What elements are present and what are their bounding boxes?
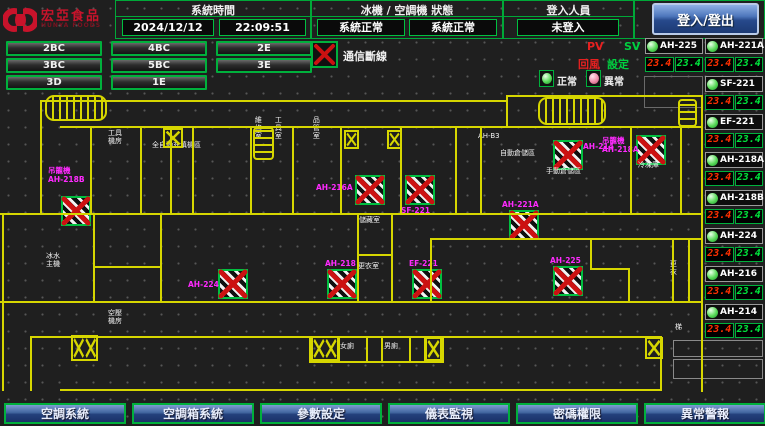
- floorplan-wall: [590, 240, 592, 270]
- unit-pv-value: 23.4: [705, 171, 734, 186]
- unit-sv-value: 23.4: [735, 171, 764, 186]
- room-label: 工具室: [274, 116, 282, 140]
- stairs-icon: [678, 99, 697, 127]
- system-time-label: 系統時間: [115, 2, 311, 18]
- offline-device-icon[interactable]: [553, 140, 583, 170]
- unit-status-lamp-icon: [707, 117, 718, 128]
- unit-sv-value: 23.4: [735, 285, 764, 300]
- room-label: 冰水主機: [46, 252, 60, 269]
- room-label: 女廁: [340, 342, 354, 350]
- unit-sv-value: 23.4: [675, 57, 704, 72]
- shaft-x-icon: [425, 337, 442, 361]
- unit-status-lamp-icon: [647, 41, 658, 52]
- unit-pv-value: 23.4: [705, 209, 734, 224]
- floorplan-wall: [480, 126, 482, 215]
- floor-button[interactable]: 5BC: [111, 58, 207, 73]
- unit-sv-value: 23.4: [735, 95, 764, 110]
- unit-name: AH-221A: [720, 41, 764, 51]
- nav-button[interactable]: 空調系統: [4, 403, 126, 424]
- comm-loss-icon: [311, 41, 338, 68]
- unit-panel[interactable]: AH-221A 23.4 23.4: [705, 38, 763, 72]
- unit-name: AH-218B: [720, 193, 764, 203]
- unit-sv-value: 23.4: [735, 133, 764, 148]
- chiller-status-value: 系統正常: [317, 19, 405, 36]
- device-label: AH-218: [325, 259, 356, 268]
- unit-status-lamp-icon: [707, 231, 718, 242]
- shaft-x-icon: [645, 337, 663, 359]
- sv-name-label: 設定: [607, 56, 629, 72]
- floor-button[interactable]: 1E: [111, 75, 207, 90]
- floor-button[interactable]: 2E: [216, 41, 312, 56]
- floorplan-wall: [60, 126, 703, 128]
- unit-panel[interactable]: AH-214 23.4 23.4: [705, 304, 763, 338]
- offline-device-icon[interactable]: [61, 196, 91, 226]
- unit-values-row: 23.4 23.4: [705, 323, 763, 338]
- floor-button[interactable]: 2BC: [6, 41, 102, 56]
- floorplan-wall: [628, 268, 630, 303]
- unit-values-row: 23.4 23.4: [705, 247, 763, 262]
- floorplan-wall: [60, 389, 662, 391]
- logo-mark-icon: [3, 5, 37, 35]
- unit-status-lamp-icon: [707, 193, 718, 204]
- unit-values-row: 23.4 23.4: [705, 57, 763, 72]
- machine-status-label: 冰機 / 空調機 狀態: [311, 2, 503, 18]
- offline-device-icon[interactable]: [412, 269, 442, 299]
- unit-status-lamp-icon: [707, 79, 718, 90]
- normal-lamp-icon: [542, 73, 552, 84]
- unit-status-lamp-icon: [707, 41, 718, 52]
- unit-name: AH-224: [720, 231, 757, 241]
- room-label: 手動倉儲區: [546, 167, 581, 175]
- logo-subtitle: HUNYA FOODS: [41, 23, 101, 29]
- unit-name-row: AH-214: [705, 304, 763, 320]
- floorplan-wall: [93, 266, 162, 268]
- unit-sv-value: 23.4: [735, 57, 764, 72]
- empty-panel: [673, 359, 763, 379]
- floorplan-wall: [680, 126, 682, 215]
- floorplan-wall: [160, 215, 162, 303]
- comm-loss-label: 通信斷線: [343, 48, 387, 64]
- offline-device-icon[interactable]: [405, 175, 435, 205]
- stairs-icon: [253, 127, 274, 160]
- room-label: 空壓機房: [108, 309, 122, 326]
- unit-status-lamp-icon: [707, 155, 718, 166]
- floorplan-wall: [506, 95, 703, 97]
- unit-sv-value: 23.4: [735, 209, 764, 224]
- offline-device-icon[interactable]: [327, 269, 357, 299]
- unit-sv-value: 23.4: [735, 323, 764, 338]
- floor-button[interactable]: 3D: [6, 75, 102, 90]
- unit-name: AH-214: [720, 307, 757, 317]
- device-label: AH-225: [550, 256, 581, 265]
- floorplan-wall: [309, 361, 444, 363]
- stairs-icon: [45, 95, 107, 121]
- floorplan-wall: [40, 100, 508, 102]
- abnormal-label: 異常: [604, 73, 624, 88]
- floor-button[interactable]: 3E: [216, 58, 312, 73]
- normal-label: 正常: [557, 73, 577, 88]
- floorplan-wall: [340, 126, 342, 215]
- abnormal-lamp-box: [586, 70, 601, 87]
- unit-panel[interactable]: SF-221 23.4 23.4: [705, 76, 763, 110]
- floorplan-wall: [140, 126, 142, 215]
- unit-sv-value: 23.4: [735, 247, 764, 262]
- floorplan-wall: [30, 336, 662, 338]
- unit-panel[interactable]: AH-225 23.4 23.4: [645, 38, 703, 72]
- floorplan-wall: [366, 336, 368, 363]
- unit-name-row: AH-221A: [705, 38, 763, 54]
- unit-values-row: 23.4 23.4: [645, 57, 703, 72]
- shaft-x-icon: [387, 130, 402, 149]
- empty-panel: [673, 340, 763, 357]
- floorplan-wall: [90, 126, 92, 215]
- nav-button[interactable]: 儀表監視: [388, 403, 510, 424]
- device-label: EF-221: [409, 259, 438, 268]
- unit-panel[interactable]: AH-216 23.4 23.4: [705, 266, 763, 300]
- unit-panel[interactable]: AH-224 23.4 23.4: [705, 228, 763, 262]
- offline-device-icon[interactable]: [553, 266, 583, 296]
- floorplan-wall: [93, 215, 95, 303]
- abnormal-lamp-icon: [589, 73, 599, 84]
- floorplan-wall: [30, 336, 32, 391]
- unit-name-row: SF-221: [705, 76, 763, 92]
- floor-button[interactable]: 3BC: [6, 58, 102, 73]
- unit-values-row: 23.4 23.4: [705, 171, 763, 186]
- floorplan-wall: [40, 100, 42, 215]
- unit-name-row: AH-216: [705, 266, 763, 282]
- floorplan-wall: [192, 126, 194, 215]
- unit-panel[interactable]: AH-218A 23.4 23.4: [705, 152, 763, 186]
- floorplan-wall: [672, 240, 674, 303]
- floorplan-wall: [0, 301, 703, 303]
- unit-name-row: AH-225: [645, 38, 703, 54]
- unit-name-row: EF-221: [705, 114, 763, 130]
- floorplan-wall: [381, 336, 383, 363]
- floorplan-wall: [430, 238, 703, 240]
- nav-button[interactable]: 密碼權限: [516, 403, 638, 424]
- unit-pv-value: 23.4: [705, 285, 734, 300]
- room-label: 工具機房: [108, 129, 122, 146]
- room-label: 自動倉儲區: [500, 149, 535, 157]
- device-label: AH-221A: [502, 200, 539, 209]
- device-label: 吊籠機AH-218B: [48, 166, 85, 185]
- unit-name-row: AH-218B: [705, 190, 763, 206]
- login-person-label: 登入人員: [503, 2, 634, 18]
- unit-pv-value: 23.4: [705, 247, 734, 262]
- unit-pv-value: 23.4: [645, 57, 674, 72]
- unit-name: AH-216: [720, 269, 757, 279]
- floorplan-wall: [430, 240, 432, 303]
- floorplan-wall: [250, 126, 252, 215]
- unit-values-row: 23.4 23.4: [705, 285, 763, 300]
- floorplan-wall: [0, 213, 703, 215]
- device-label: AH-224: [188, 280, 219, 289]
- unit-values-row: 23.4 23.4: [705, 95, 763, 110]
- device-label: AH-216A: [316, 183, 353, 192]
- device-label: 吊籠機AH-218A: [602, 136, 639, 155]
- unit-pv-value: 23.4: [705, 323, 734, 338]
- unit-name: AH-225: [660, 41, 697, 51]
- sv-label: SV: [624, 40, 640, 53]
- floorplan-wall: [701, 95, 703, 392]
- floorplan-wall: [442, 336, 444, 363]
- room-label: 男廁: [384, 342, 398, 350]
- floorplan-wall: [455, 126, 457, 215]
- ahu-status-value: 系統正常: [409, 19, 497, 36]
- unit-panel[interactable]: EF-221 23.4 23.4: [705, 114, 763, 148]
- hunya-logo: 宏亞食品 HUNYA FOODS: [3, 2, 115, 37]
- login-logout-button[interactable]: 登入/登出: [652, 3, 759, 35]
- room-label: 梯: [675, 323, 682, 331]
- floorplan-wall: [590, 268, 630, 270]
- floorplan-wall: [506, 95, 508, 128]
- unit-status-lamp-icon: [707, 307, 718, 318]
- login-state-value: 未登入: [517, 19, 619, 36]
- shaft-x-icon: [344, 130, 359, 149]
- floor-button[interactable]: 4BC: [111, 41, 207, 56]
- unit-pv-value: 23.4: [705, 57, 734, 72]
- unit-values-row: 23.4 23.4: [705, 133, 763, 148]
- pv-label: PV: [587, 40, 604, 53]
- unit-name: EF-221: [720, 117, 755, 127]
- floorplan-wall: [391, 215, 393, 303]
- nav-button[interactable]: 參數設定: [260, 403, 382, 424]
- room-label: 儲藏室: [359, 216, 380, 224]
- offline-device-icon[interactable]: [355, 175, 385, 205]
- system-time-value: 22:09:51: [219, 19, 306, 36]
- floorplan-wall: [630, 126, 632, 215]
- floorplan-wall: [357, 254, 393, 256]
- unit-name: SF-221: [720, 79, 755, 89]
- unit-name: AH-218A: [720, 155, 764, 165]
- unit-pv-value: 23.4: [705, 133, 734, 148]
- offline-device-icon[interactable]: [218, 269, 248, 299]
- unit-panel[interactable]: AH-218B 23.4 23.4: [705, 190, 763, 224]
- room-label: 冷凍庫: [638, 161, 659, 169]
- shaft-x-icon: [311, 336, 339, 361]
- floorplan-wall: [357, 215, 359, 303]
- floorplan-wall: [409, 336, 411, 363]
- unit-values-row: 23.4 23.4: [705, 209, 763, 224]
- floorplan-wall: [292, 126, 294, 215]
- nav-button[interactable]: 空調箱系統: [132, 403, 254, 424]
- unit-name-row: AH-224: [705, 228, 763, 244]
- system-date-value: 2024/12/12: [122, 19, 214, 36]
- normal-lamp-box: [539, 70, 554, 87]
- room-label: 品管室: [312, 116, 320, 140]
- unit-status-lamp-icon: [707, 269, 718, 280]
- nav-button[interactable]: 異常警報: [644, 403, 765, 424]
- shaft-x-icon: [163, 128, 183, 148]
- room-label: 更衣室: [358, 262, 379, 270]
- unit-pv-value: 23.4: [705, 95, 734, 110]
- stairs-icon: [538, 97, 606, 125]
- unit-name-row: AH-218A: [705, 152, 763, 168]
- floorplan-wall: [688, 240, 690, 303]
- shaft-x-icon: [71, 335, 98, 361]
